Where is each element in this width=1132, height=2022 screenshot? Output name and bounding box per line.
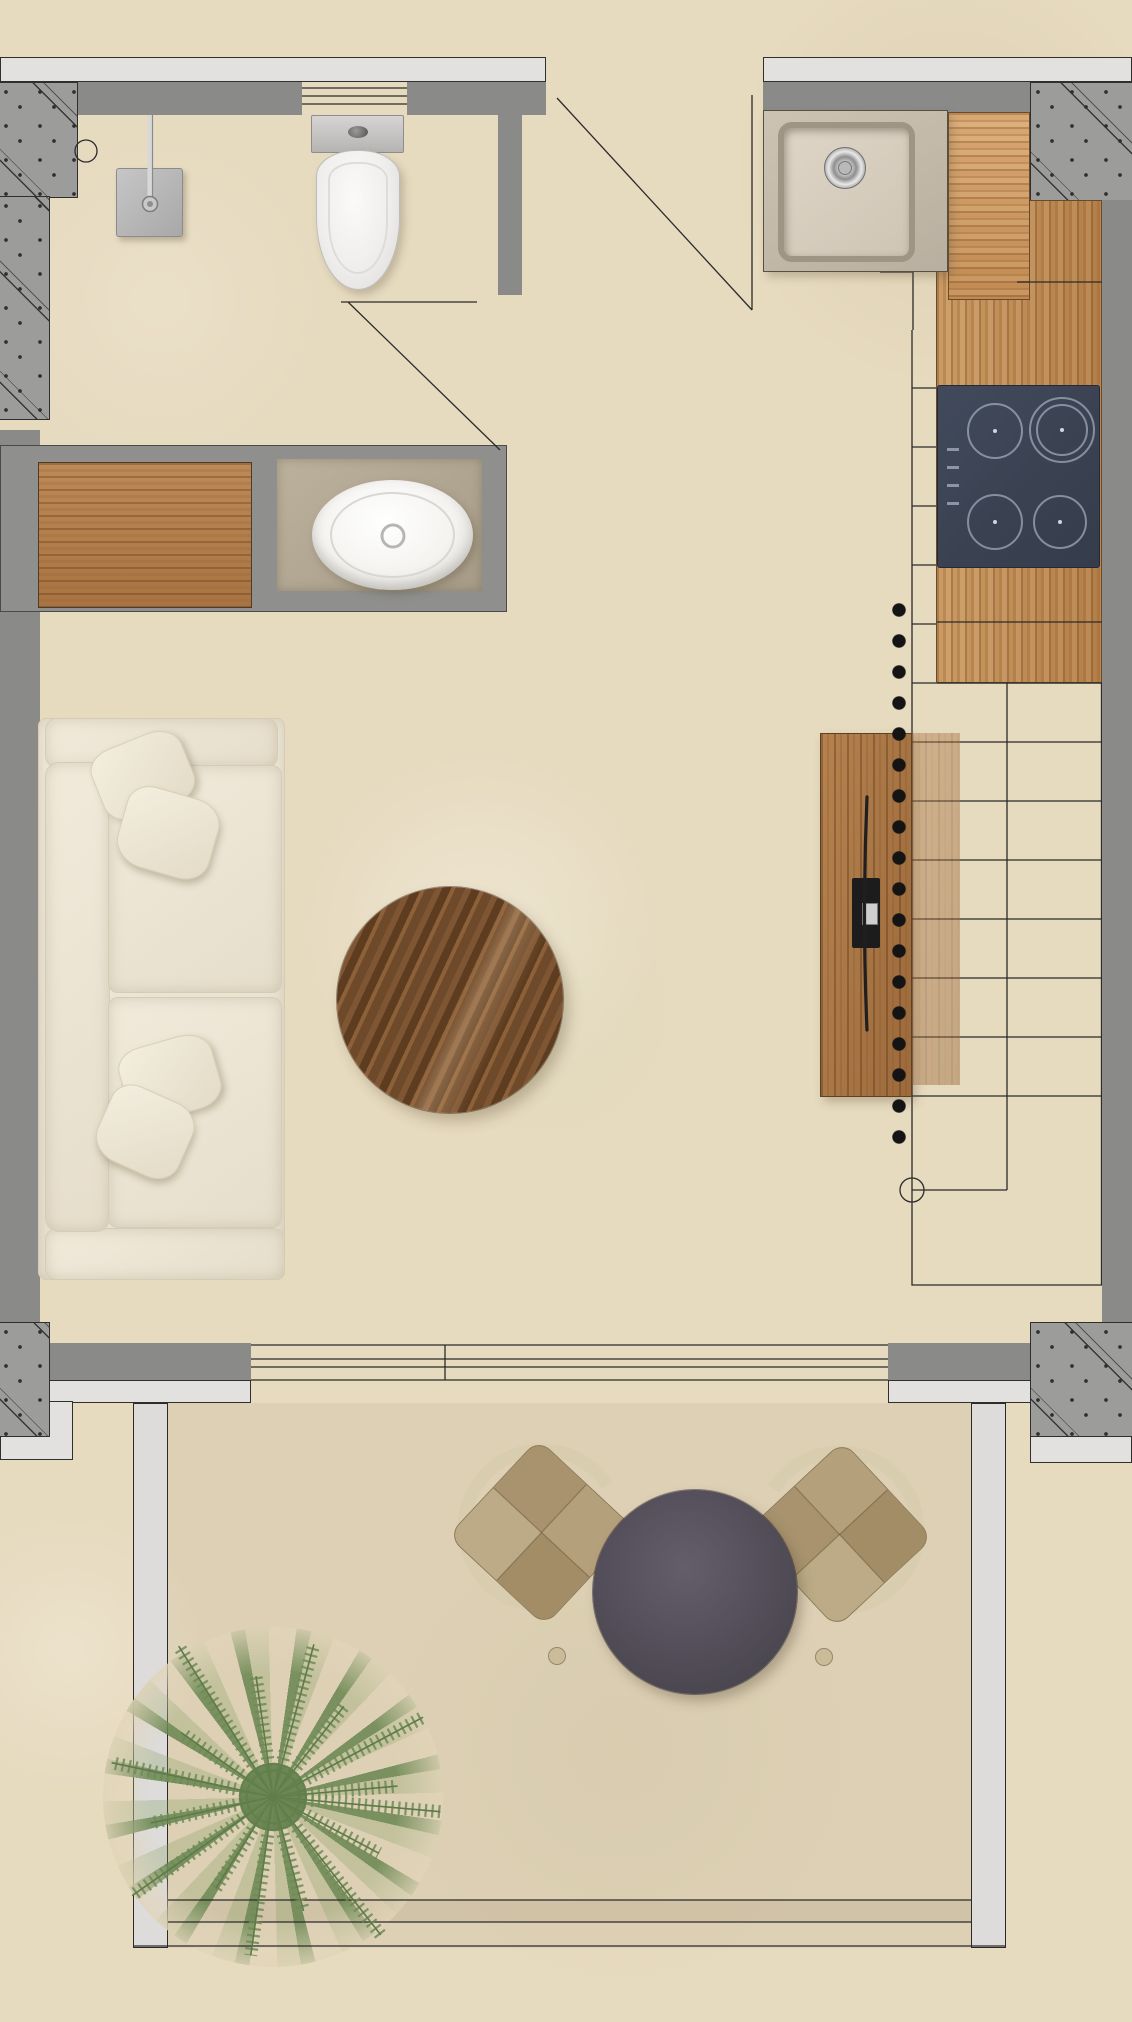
shower-floor-drain [75,140,97,162]
terrace-step-lines [133,1900,1006,1946]
sliding-door-glazing [251,1345,888,1380]
basin-drain [382,525,404,547]
floorplan-canvas [0,0,1132,2022]
plan-linework [0,0,1132,2022]
fern-plant-fronds [112,1644,441,1955]
shower-head-center [147,201,153,207]
wall-tv-screen [865,797,868,1030]
counter-seams [937,282,1102,683]
window-glazing-bathroom [302,88,407,104]
bathroom-door-swing [341,302,500,450]
entrance-door-swing [557,95,752,310]
